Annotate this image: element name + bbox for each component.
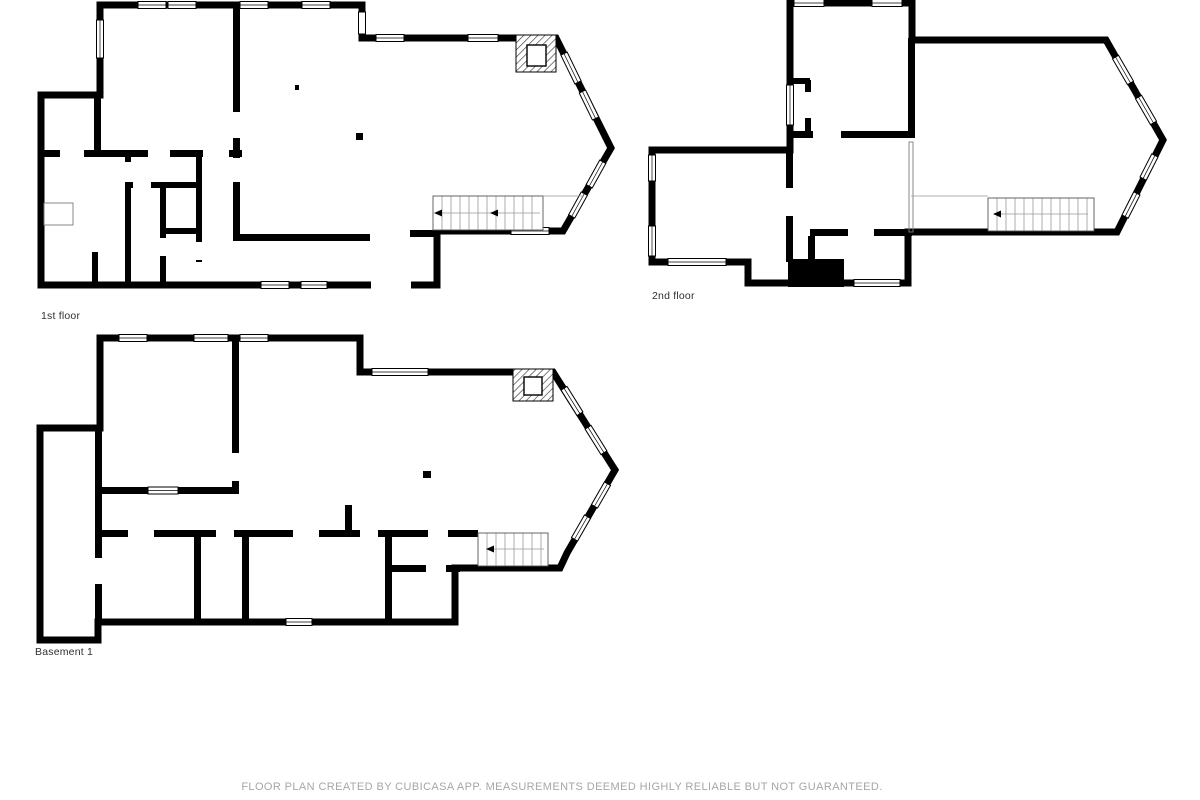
second-floor-staircase	[988, 198, 1094, 231]
wet-bar-fixture	[423, 471, 431, 478]
footer-disclaimer: FLOOR PLAN CREATED BY CUBICASA APP. MEAS…	[0, 781, 1124, 793]
floor-plan-canvas: PRIMARY BEDROOM 4.11 m x 4.62 m DINING A…	[0, 0, 1200, 800]
second-floor-plan: BEDROOM 3.85 m x 4.08 m BEDROOM 4.11 m x…	[649, 0, 1164, 302]
light-fixture-icon	[295, 85, 299, 90]
bedroom-door-opening	[752, 258, 786, 266]
basement-staircase	[478, 533, 548, 566]
fireplace-flue-icon	[527, 45, 546, 66]
entry-door-opening	[371, 281, 411, 289]
fireplace-flue-icon	[524, 377, 542, 395]
second-floor-label: 2nd floor	[652, 290, 695, 302]
basement-plan: BEDROOM 4.10 m x 4.56 m RECREATION ROOM …	[35, 335, 615, 659]
first-floor-label: 1st floor	[41, 310, 80, 322]
first-floor-fireplace	[516, 35, 556, 72]
first-floor-plan: PRIMARY BEDROOM 4.11 m x 4.62 m DINING A…	[41, 2, 611, 323]
structural-column	[356, 133, 363, 140]
second-floor-outer-walls	[652, 3, 1163, 283]
basement-fireplace	[513, 369, 553, 401]
basement-floor-label: Basement 1	[35, 646, 93, 658]
chimney-block	[788, 259, 844, 287]
